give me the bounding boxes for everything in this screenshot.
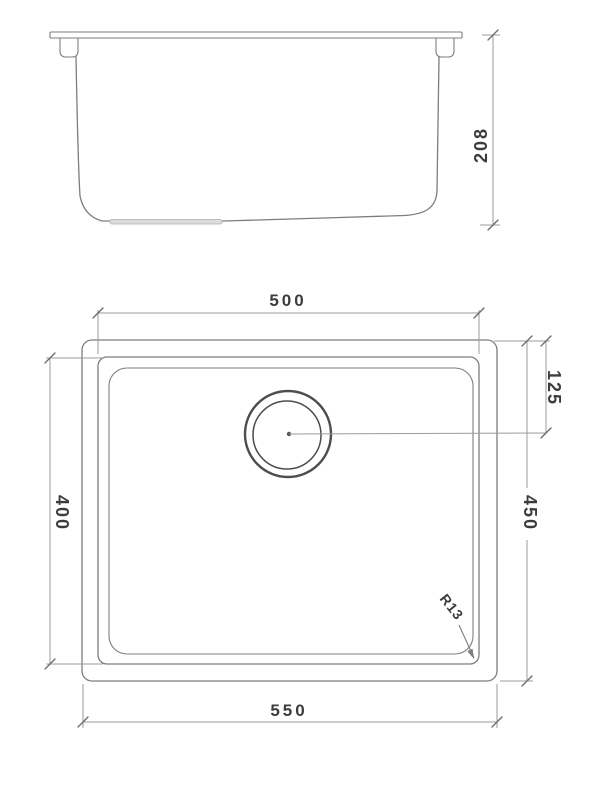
mounting-clip-left: [60, 38, 78, 57]
mounting-clip-right: [436, 38, 454, 57]
side-elevation-view: 208: [50, 30, 500, 230]
plan-view: 500 400 125: [45, 291, 564, 728]
dimension-label-overall-width: 550: [270, 701, 307, 720]
drain-recess-profile: [110, 220, 222, 225]
dimension-label-drain-offset: 125: [544, 370, 564, 406]
sink-rim-profile: [50, 32, 462, 38]
dimension-label-corner-radius: R13: [437, 591, 467, 623]
drain-center-leader: [289, 433, 546, 434]
dimension-height: 208: [471, 30, 500, 230]
sink-bowl-profile: [76, 57, 439, 221]
dimension-overall-width: 550: [78, 684, 502, 728]
dimension-label-overall-depth: 450: [520, 495, 540, 531]
dimension-label-bowl-width: 500: [269, 291, 306, 310]
dimension-bowl-depth: 400: [45, 353, 103, 669]
bowl-opening-edge: [98, 357, 479, 664]
dimension-bowl-width: 500: [93, 291, 484, 354]
dimension-overall-depth: 450: [500, 336, 540, 686]
bowl-bottom-edge: [109, 368, 473, 654]
sink-technical-drawing: 208 500: [0, 0, 606, 800]
radius-leader-arrowhead: [467, 649, 474, 659]
dimension-label-bowl-depth: 400: [52, 495, 72, 531]
dimension-label-height: 208: [471, 127, 491, 163]
drain-inner-ring: [253, 401, 321, 469]
